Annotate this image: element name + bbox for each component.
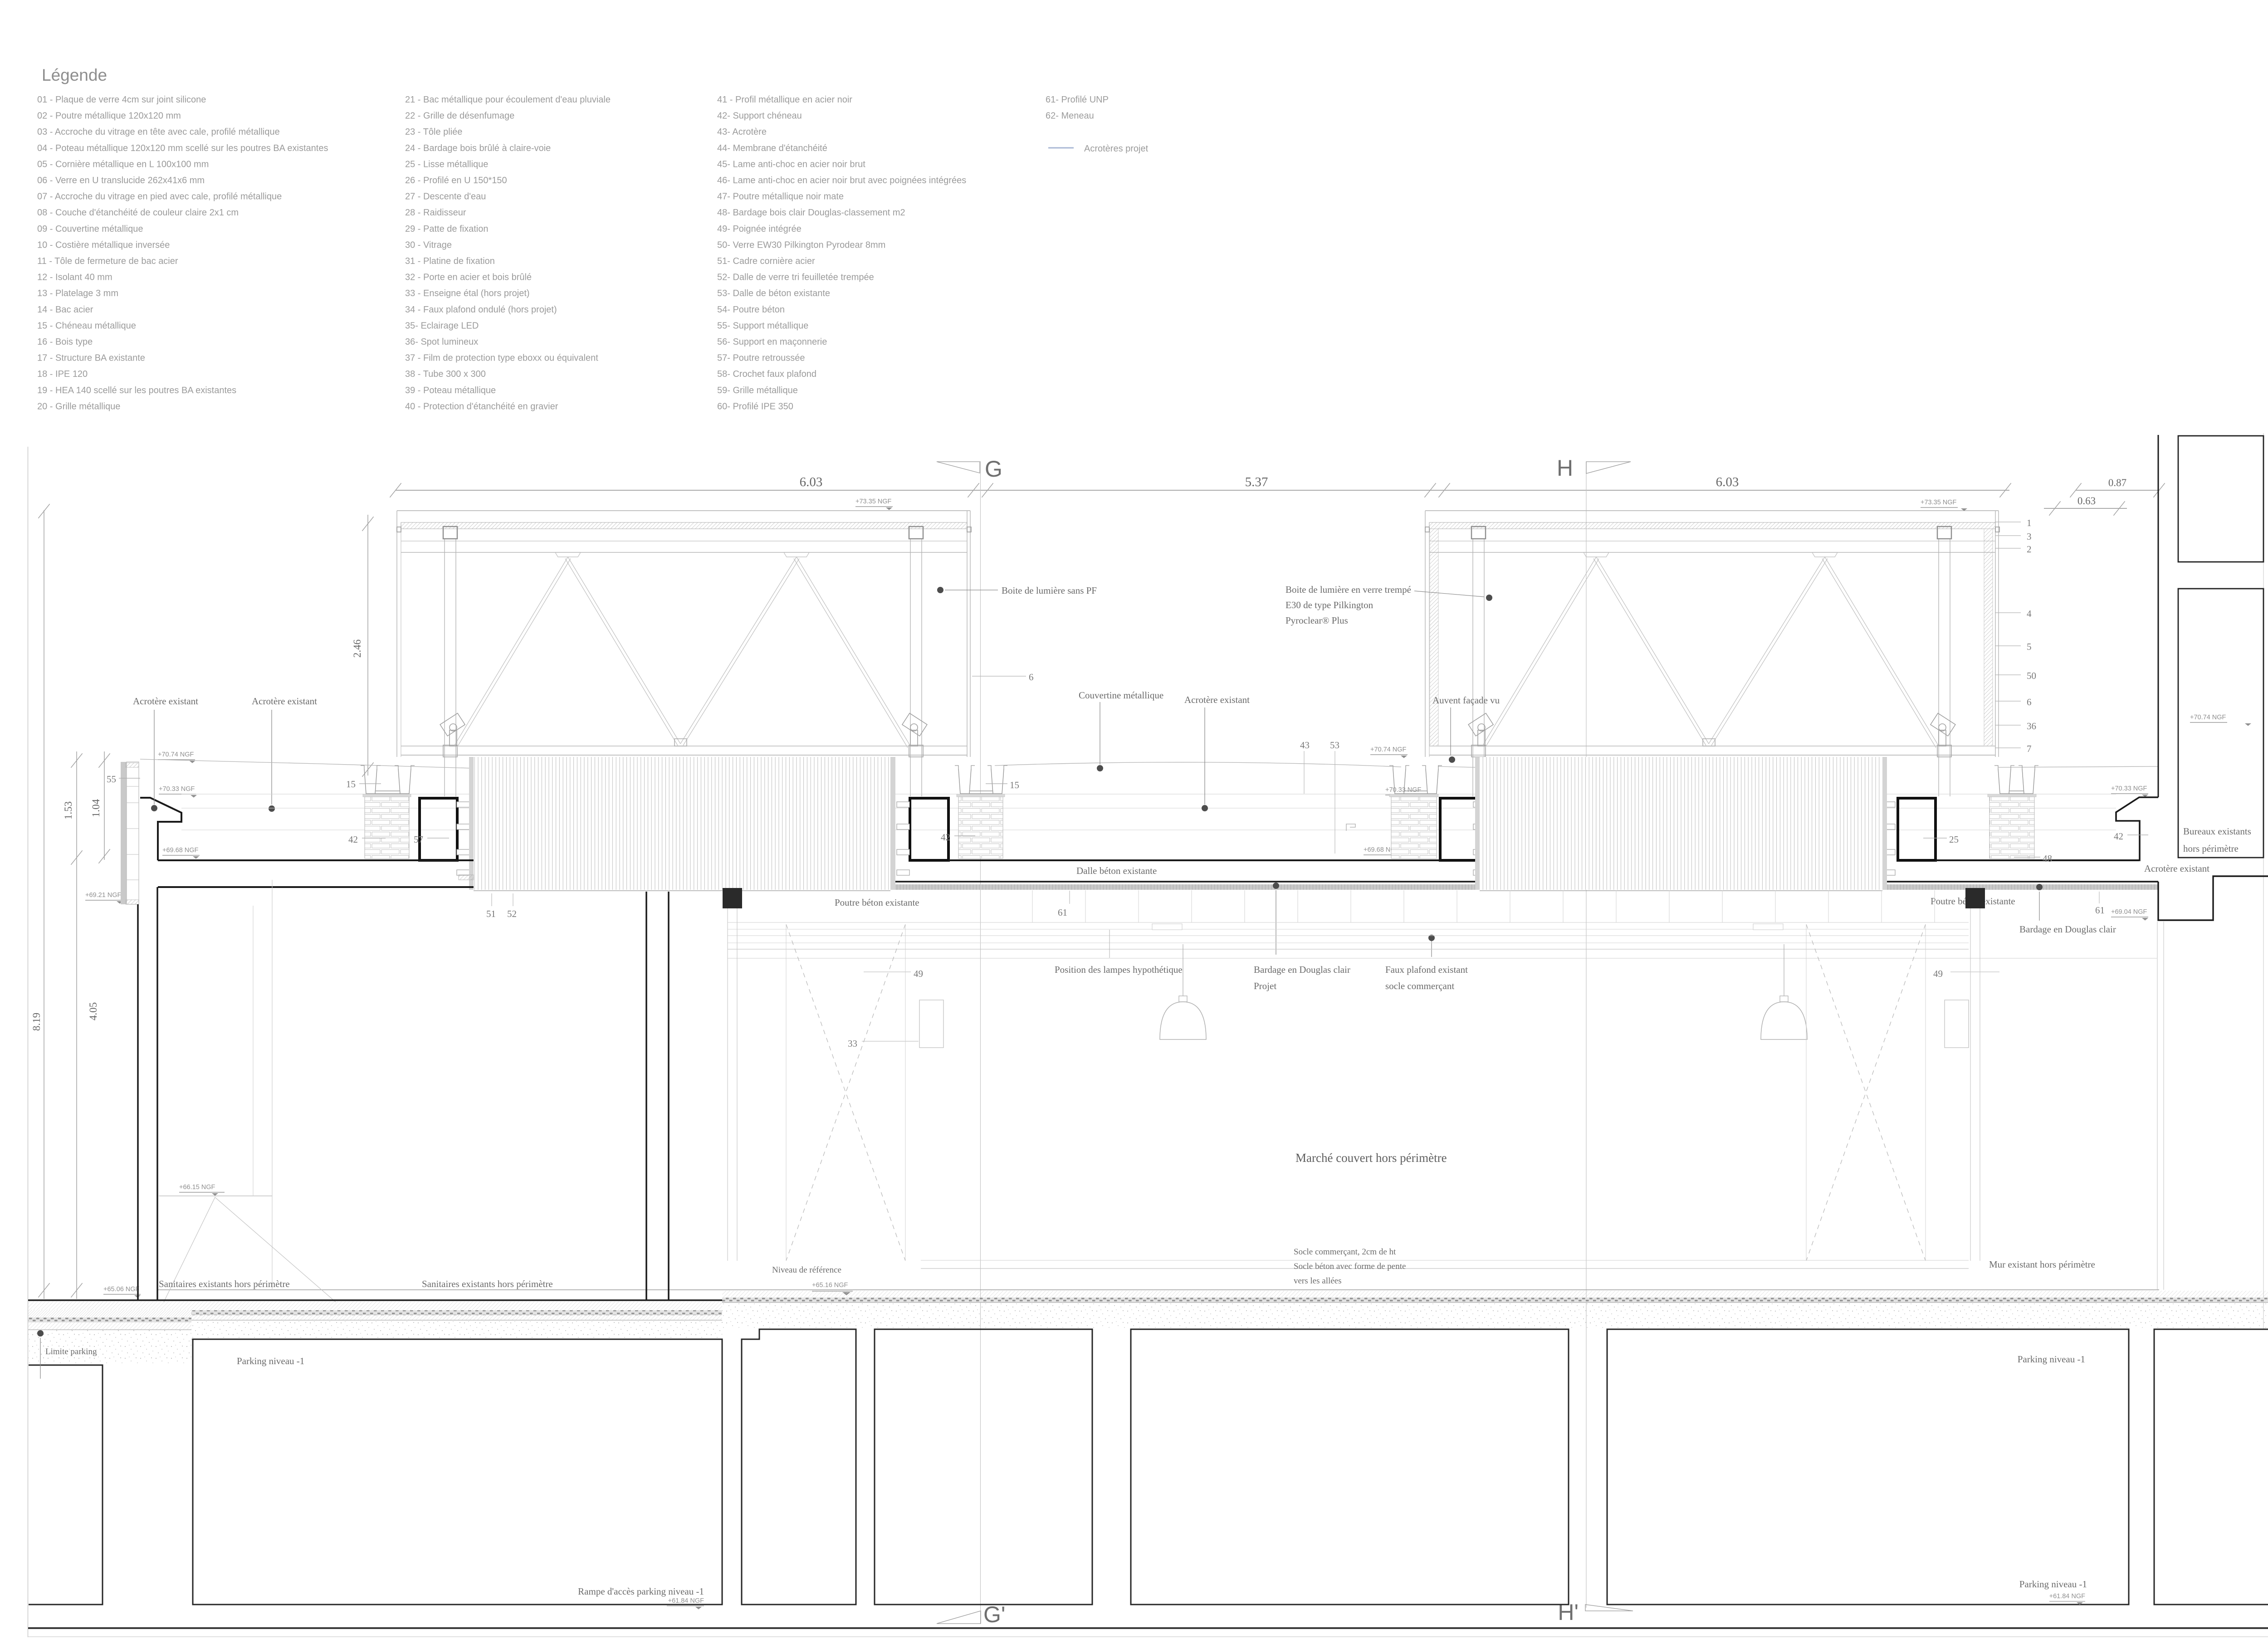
svg-text:Couvertine métallique: Couvertine métallique (1079, 690, 1163, 701)
svg-text:0.87: 0.87 (2108, 477, 2126, 488)
svg-text:06 - Verre en U translucide 26: 06 - Verre en U translucide 262x41x6 mm (37, 176, 205, 185)
svg-text:43- Acrotère: 43- Acrotère (717, 127, 767, 137)
svg-text:17 - Structure BA existante: 17 - Structure BA existante (37, 353, 145, 363)
svg-text:46- Lame anti-choc en acier no: 46- Lame anti-choc en acier noir brut av… (717, 176, 966, 185)
svg-text:Pyroclear® Plus: Pyroclear® Plus (1286, 615, 1348, 626)
svg-text:Sanitaires existants hors péri: Sanitaires existants hors périmètre (422, 1278, 553, 1289)
svg-text:2.46: 2.46 (352, 639, 363, 658)
svg-text:13 - Platelage 3 mm: 13 - Platelage 3 mm (37, 288, 118, 298)
svg-text:10 - Costière métallique inver: 10 - Costière métallique inversée (37, 240, 170, 250)
svg-text:4: 4 (2027, 608, 2032, 619)
svg-text:Position des lampes hypothétiq: Position des lampes hypothétique (1055, 964, 1183, 975)
svg-text:08 - Couche d'étanchéité de co: 08 - Couche d'étanchéité de couleur clai… (37, 208, 239, 218)
svg-text:12 - Isolant 40 mm: 12 - Isolant 40 mm (37, 273, 112, 283)
svg-text:6: 6 (1029, 672, 1034, 683)
svg-text:+70.33 NGF: +70.33 NGF (1385, 786, 1422, 794)
svg-text:37 - Film de protection type e: 37 - Film de protection type eboxx ou éq… (405, 353, 598, 363)
svg-text:1.04: 1.04 (90, 799, 102, 817)
svg-text:G': G' (983, 1602, 1005, 1627)
svg-text:19 - HEA 140 scellé sur les po: 19 - HEA 140 scellé sur les poutres BA e… (37, 385, 236, 395)
svg-text:25 - Lisse métallique: 25 - Lisse métallique (405, 159, 488, 169)
svg-text:6: 6 (2027, 697, 2032, 707)
svg-text:Marché couvert hors périmètre: Marché couvert hors périmètre (1295, 1151, 1447, 1165)
svg-text:36- Spot lumineux: 36- Spot lumineux (405, 337, 478, 347)
svg-text:48: 48 (2043, 853, 2052, 864)
svg-text:4.05: 4.05 (88, 1002, 99, 1020)
svg-text:54- Poutre béton: 54- Poutre béton (717, 305, 785, 315)
svg-text:1.53: 1.53 (63, 801, 74, 819)
svg-text:02 - Poutre métallique 120x120: 02 - Poutre métallique 120x120 mm (37, 111, 181, 121)
svg-text:Boite de lumière sans PF: Boite de lumière sans PF (1002, 585, 1097, 596)
svg-text:38 - Tube 300 x 300: 38 - Tube 300 x 300 (405, 369, 486, 379)
svg-text:socle commerçant: socle commerçant (1385, 980, 1454, 991)
svg-text:50: 50 (2027, 670, 2036, 681)
svg-text:04 - Poteau métallique 120x120: 04 - Poteau métallique 120x120 mm scellé… (37, 143, 328, 153)
svg-text:Boite de lumière en verre trem: Boite de lumière en verre trempé (1286, 584, 1411, 595)
svg-text:51- Cadre cornière acier: 51- Cadre cornière acier (717, 256, 815, 266)
svg-text:14 - Bac acier: 14 - Bac acier (37, 305, 93, 315)
svg-text:5: 5 (2027, 641, 2032, 652)
svg-text:Poutre béton existante: Poutre béton existante (835, 897, 919, 908)
svg-text:22 - Grille de désenfumage: 22 - Grille de désenfumage (405, 111, 514, 121)
svg-text:51: 51 (486, 908, 496, 919)
svg-text:34 - Faux plafond ondulé (hors: 34 - Faux plafond ondulé (hors projet) (405, 305, 557, 315)
svg-text:1: 1 (2027, 517, 2032, 528)
svg-text:27 - Descente d'eau: 27 - Descente d'eau (405, 192, 486, 202)
svg-text:23 - Tôle pliée: 23 - Tôle pliée (405, 127, 462, 137)
svg-text:01 - Plaque de verre 4cm sur j: 01 - Plaque de verre 4cm sur joint silic… (37, 95, 206, 105)
svg-text:52- Dalle de verre tri feuille: 52- Dalle de verre tri feuilletée trempé… (717, 273, 874, 283)
svg-text:24 - Bardage bois brûlé à clai: 24 - Bardage bois brûlé à claire-voie (405, 143, 551, 153)
svg-text:29 - Patte de fixation: 29 - Patte de fixation (405, 224, 488, 234)
svg-text:E30 de type Pilkington: E30 de type Pilkington (1286, 600, 1374, 610)
svg-text:3: 3 (2027, 531, 2032, 542)
svg-text:Niveau de référence: Niveau de référence (772, 1265, 841, 1275)
svg-text:+70.74 NGF: +70.74 NGF (158, 751, 194, 758)
svg-text:28 - Raidisseur: 28 - Raidisseur (405, 208, 466, 218)
svg-text:35- Eclairage LED: 35- Eclairage LED (405, 321, 479, 331)
svg-text:60- Profilé IPE 350: 60- Profilé IPE 350 (717, 401, 793, 411)
svg-text:15: 15 (1010, 780, 1019, 790)
svg-text:42- Support chéneau: 42- Support chéneau (717, 111, 802, 121)
svg-text:61: 61 (2095, 905, 2105, 916)
svg-text:53: 53 (1330, 740, 1339, 751)
svg-text:20 - Grille métallique: 20 - Grille métallique (37, 401, 120, 411)
svg-text:16 - Bois type: 16 - Bois type (37, 337, 93, 347)
svg-text:Limite parking: Limite parking (45, 1347, 97, 1356)
svg-text:32 - Porte en acier et bois br: 32 - Porte en acier et bois brûlé (405, 273, 532, 283)
svg-text:Bureaux existants: Bureaux existants (2183, 826, 2251, 837)
svg-text:03 - Accroche du vitrage en tê: 03 - Accroche du vitrage en tête avec ca… (37, 127, 280, 137)
svg-text:43: 43 (1300, 740, 1310, 751)
svg-text:61- Profilé UNP: 61- Profilé UNP (1046, 95, 1109, 105)
svg-text:Rampe d'accès parking niveau -: Rampe d'accès parking niveau -1 (578, 1586, 704, 1597)
svg-text:+61.84 NGF: +61.84 NGF (2049, 1593, 2086, 1600)
svg-text:55: 55 (107, 774, 116, 785)
svg-text:Projet: Projet (1254, 980, 1276, 991)
svg-text:48- Bardage bois clair Douglas: 48- Bardage bois clair Douglas-classemen… (717, 208, 905, 218)
svg-text:49: 49 (914, 968, 923, 979)
svg-text:52: 52 (507, 908, 517, 919)
svg-text:41 - Profil métallique en acie: 41 - Profil métallique en acier noir (717, 95, 852, 105)
svg-text:+70.74 NGF: +70.74 NGF (2190, 714, 2226, 721)
svg-text:45- Lame anti-choc en acier no: 45- Lame anti-choc en acier noir brut (717, 159, 865, 169)
svg-text:H: H (1557, 455, 1573, 481)
svg-text:59- Grille métallique: 59- Grille métallique (717, 385, 798, 395)
svg-text:+65.16 NGF: +65.16 NGF (812, 1282, 848, 1289)
svg-text:49: 49 (1933, 968, 1943, 979)
svg-text:Socle béton avec forme de pent: Socle béton avec forme de pente (1294, 1262, 1406, 1271)
svg-text:21 - Bac métallique pour écoul: 21 - Bac métallique pour écoulement d'ea… (405, 95, 611, 105)
svg-text:Acrotère existant: Acrotère existant (133, 696, 198, 707)
svg-text:33: 33 (848, 1038, 857, 1049)
svg-text:11 - Tôle de fermeture de bac: 11 - Tôle de fermeture de bac acier (37, 256, 178, 266)
svg-text:+69.04 NGF: +69.04 NGF (2111, 908, 2147, 916)
svg-text:55- Support métallique: 55- Support métallique (717, 321, 808, 331)
svg-text:44- Membrane d'étanchéité: 44- Membrane d'étanchéité (717, 143, 827, 153)
svg-text:25: 25 (1949, 834, 1959, 845)
svg-text:6.03: 6.03 (800, 475, 823, 489)
svg-text:Légende: Légende (42, 66, 107, 84)
svg-text:+61.84 NGF: +61.84 NGF (668, 1597, 704, 1605)
svg-text:+70.33 NGF: +70.33 NGF (2111, 785, 2147, 792)
svg-text:5.37: 5.37 (1245, 475, 1268, 489)
svg-text:7: 7 (2027, 743, 2032, 754)
svg-text:vers les allées: vers les allées (1294, 1276, 1342, 1286)
svg-text:50- Verre EW30 Pilkington Pyro: 50- Verre EW30 Pilkington Pyrodear 8mm (717, 240, 885, 250)
svg-text:+69.68 NGF: +69.68 NGF (162, 847, 199, 854)
svg-text:15 - Chéneau métallique: 15 - Chéneau métallique (37, 321, 136, 331)
svg-text:42: 42 (348, 834, 358, 845)
svg-text:Parking niveau -1: Parking niveau -1 (2018, 1354, 2085, 1365)
svg-text:36: 36 (2027, 721, 2036, 732)
svg-text:15: 15 (346, 779, 356, 790)
svg-text:+73.35 NGF: +73.35 NGF (1921, 499, 1957, 506)
svg-text:Socle commerçant, 2cm de ht: Socle commerçant, 2cm de ht (1294, 1247, 1396, 1257)
svg-text:Acrotère existant: Acrotère existant (2144, 863, 2209, 874)
svg-text:Mur existant hors périmètre: Mur existant hors périmètre (1989, 1259, 2095, 1270)
svg-text:Auvent façade vu: Auvent façade vu (1432, 695, 1500, 706)
svg-text:Parking niveau -1: Parking niveau -1 (237, 1356, 304, 1366)
svg-text:+70.33 NGF: +70.33 NGF (159, 785, 195, 793)
svg-text:+66.15 NGF: +66.15 NGF (179, 1184, 215, 1191)
svg-text:+70.74 NGF: +70.74 NGF (1370, 746, 1407, 753)
svg-text:42: 42 (941, 832, 950, 843)
svg-text:26 - Profilé en U 150*150: 26 - Profilé en U 150*150 (405, 176, 507, 185)
svg-text:Acrotères projet: Acrotères projet (1084, 144, 1149, 154)
svg-text:+65.06 NGF: +65.06 NGF (103, 1286, 140, 1293)
svg-text:62- Meneau: 62- Meneau (1046, 111, 1094, 121)
svg-text:31 - Platine de fixation: 31 - Platine de fixation (405, 256, 495, 266)
svg-text:33 - Enseigne étal (hors proje: 33 - Enseigne étal (hors projet) (405, 288, 530, 298)
svg-text:09 - Couvertine métallique: 09 - Couvertine métallique (37, 224, 143, 234)
svg-text:8.19: 8.19 (31, 1013, 42, 1031)
svg-text:57: 57 (414, 834, 423, 845)
svg-text:57- Poutre retroussée: 57- Poutre retroussée (717, 353, 805, 363)
svg-text:Acrotère existant: Acrotère existant (252, 696, 317, 707)
svg-text:30 - Vitrage: 30 - Vitrage (405, 240, 452, 250)
svg-text:42: 42 (2114, 831, 2123, 842)
svg-text:Bardage en Douglas clair: Bardage en Douglas clair (1254, 964, 1350, 975)
svg-text:47- Poutre métallique noir mat: 47- Poutre métallique noir mate (717, 192, 844, 202)
svg-text:Dalle béton existante: Dalle béton existante (1076, 865, 1157, 876)
svg-text:49- Poignée intégrée: 49- Poignée intégrée (717, 224, 802, 234)
svg-text:39 - Poteau métallique: 39 - Poteau métallique (405, 385, 496, 395)
svg-text:0.63: 0.63 (2077, 495, 2096, 507)
svg-text:+73.35 NGF: +73.35 NGF (855, 498, 892, 505)
svg-text:Faux plafond existant: Faux plafond existant (1385, 964, 1468, 975)
svg-text:53- Dalle de béton existante: 53- Dalle de béton existante (717, 288, 830, 298)
svg-text:+69.21 NGF: +69.21 NGF (85, 892, 122, 899)
svg-text:G: G (985, 456, 1002, 482)
svg-text:18 - IPE 120: 18 - IPE 120 (37, 369, 88, 379)
svg-text:Sanitaires existants hors péri: Sanitaires existants hors périmètre (159, 1278, 290, 1289)
svg-text:07 - Accroche du vitrage en pi: 07 - Accroche du vitrage en pied avec ca… (37, 192, 282, 202)
svg-text:Bardage en Douglas clair: Bardage en Douglas clair (2019, 924, 2116, 935)
svg-text:2: 2 (2027, 544, 2032, 555)
svg-text:40 - Protection d'étanchéité e: 40 - Protection d'étanchéité en gravier (405, 401, 558, 411)
svg-text:56- Support en maçonnerie: 56- Support en maçonnerie (717, 337, 827, 347)
svg-text:05 - Cornière métallique en L: 05 - Cornière métallique en L 100x100 mm (37, 159, 209, 169)
svg-text:6.03: 6.03 (1716, 475, 1739, 489)
svg-text:61: 61 (1058, 907, 1067, 918)
svg-text:Parking niveau -1: Parking niveau -1 (2019, 1579, 2087, 1590)
svg-text:58- Crochet faux plafond: 58- Crochet faux plafond (717, 369, 816, 379)
svg-text:hors périmètre: hors périmètre (2183, 843, 2239, 854)
svg-text:Acrotère existant: Acrotère existant (1184, 694, 1250, 705)
